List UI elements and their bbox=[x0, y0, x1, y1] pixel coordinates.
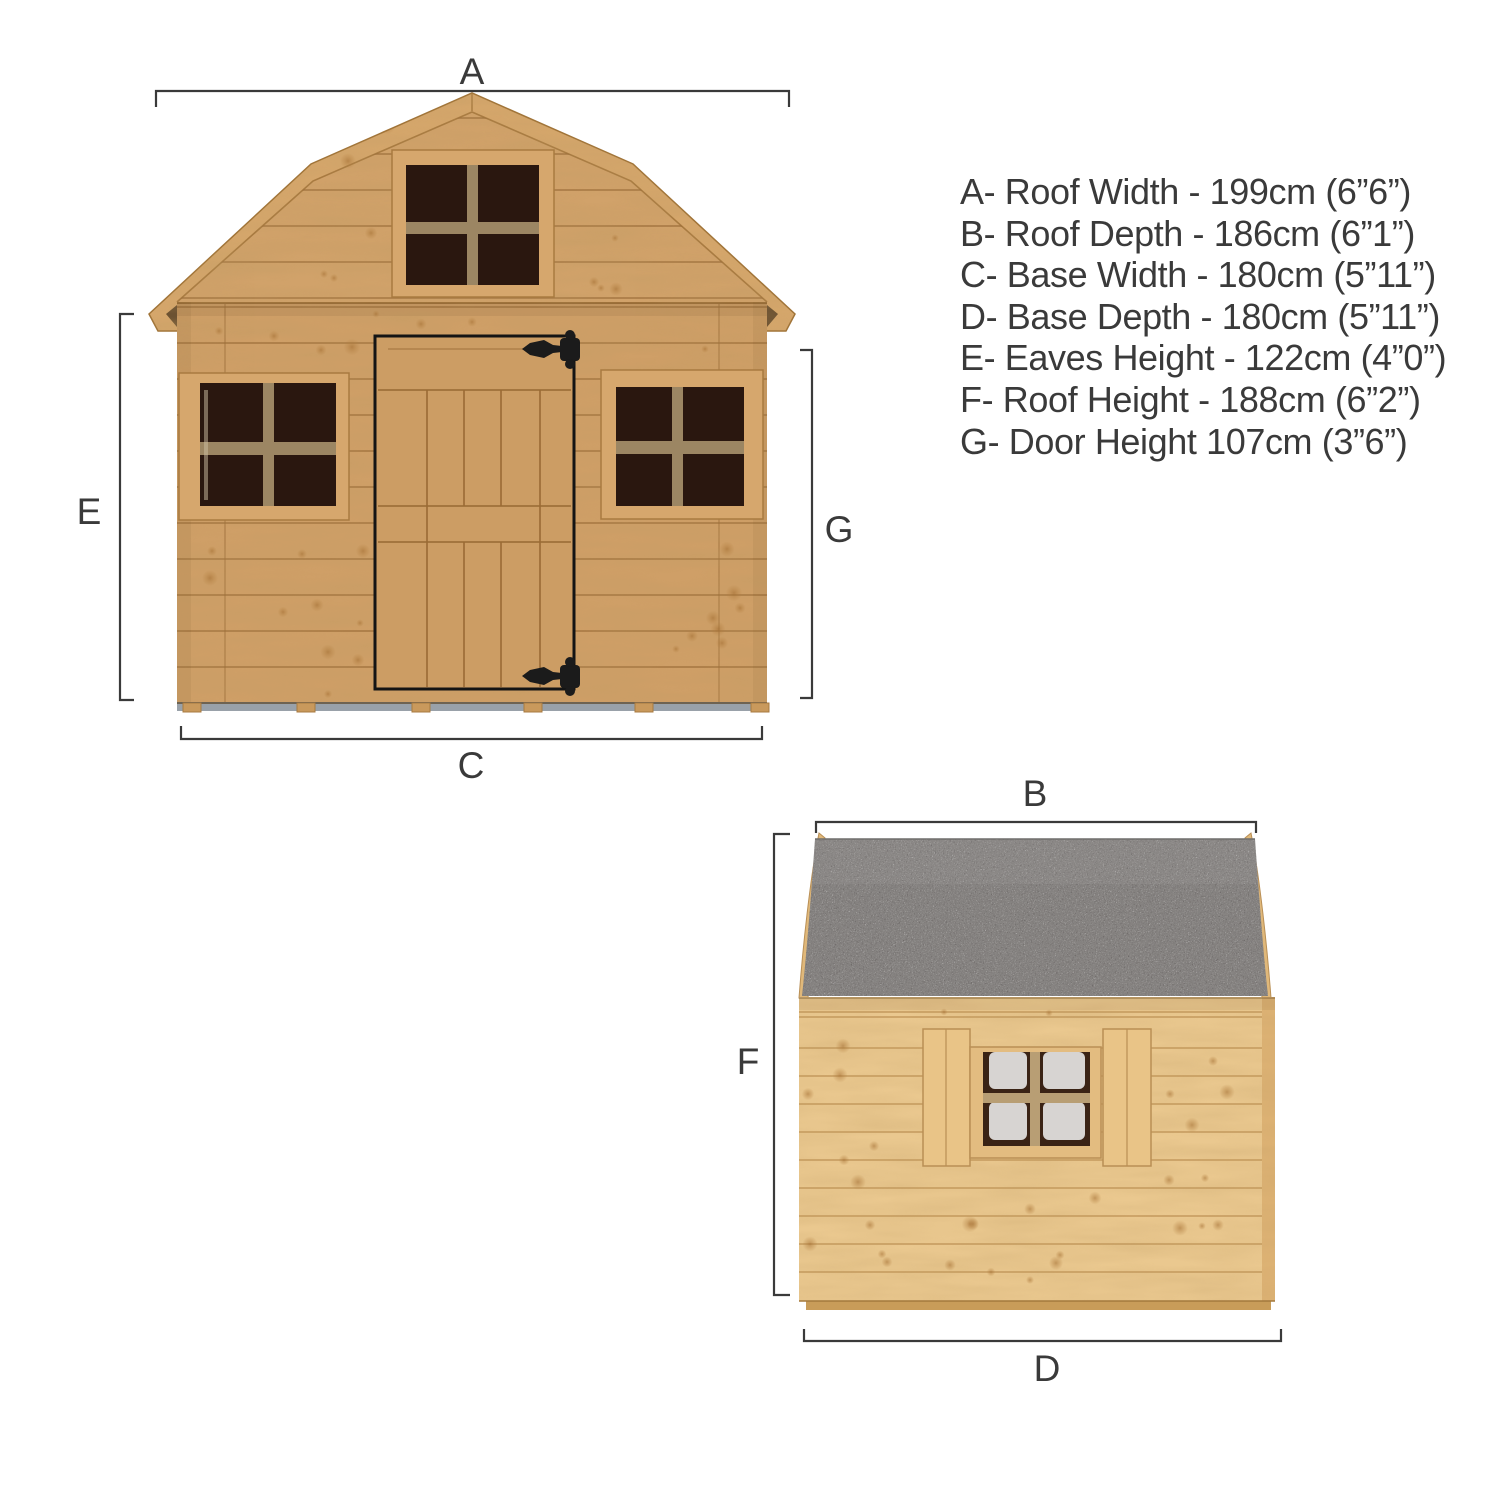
svg-text:C- Base Width - 180cm (5”11”): C- Base Width - 180cm (5”11”) bbox=[960, 254, 1436, 295]
svg-text:F: F bbox=[737, 1041, 760, 1082]
svg-text:A: A bbox=[460, 51, 485, 92]
svg-text:B: B bbox=[1023, 773, 1048, 814]
svg-text:A- Roof Width - 199cm (6”6”): A- Roof Width - 199cm (6”6”) bbox=[960, 171, 1411, 212]
svg-text:G- Door Height 107cm (3”6”): G- Door Height 107cm (3”6”) bbox=[960, 421, 1407, 462]
svg-text:G: G bbox=[825, 509, 854, 550]
svg-text:D- Base Depth - 180cm (5”11”): D- Base Depth - 180cm (5”11”) bbox=[960, 296, 1440, 337]
svg-text:B- Roof Depth - 186cm (6”1”): B- Roof Depth - 186cm (6”1”) bbox=[960, 213, 1415, 254]
svg-text:E- Eaves Height - 122cm (4”0”): E- Eaves Height - 122cm (4”0”) bbox=[960, 337, 1446, 378]
svg-text:E: E bbox=[77, 491, 102, 532]
svg-text:C: C bbox=[458, 745, 485, 786]
svg-text:D: D bbox=[1034, 1348, 1061, 1389]
svg-text:F- Roof Height - 188cm (6”2”): F- Roof Height - 188cm (6”2”) bbox=[960, 379, 1421, 420]
